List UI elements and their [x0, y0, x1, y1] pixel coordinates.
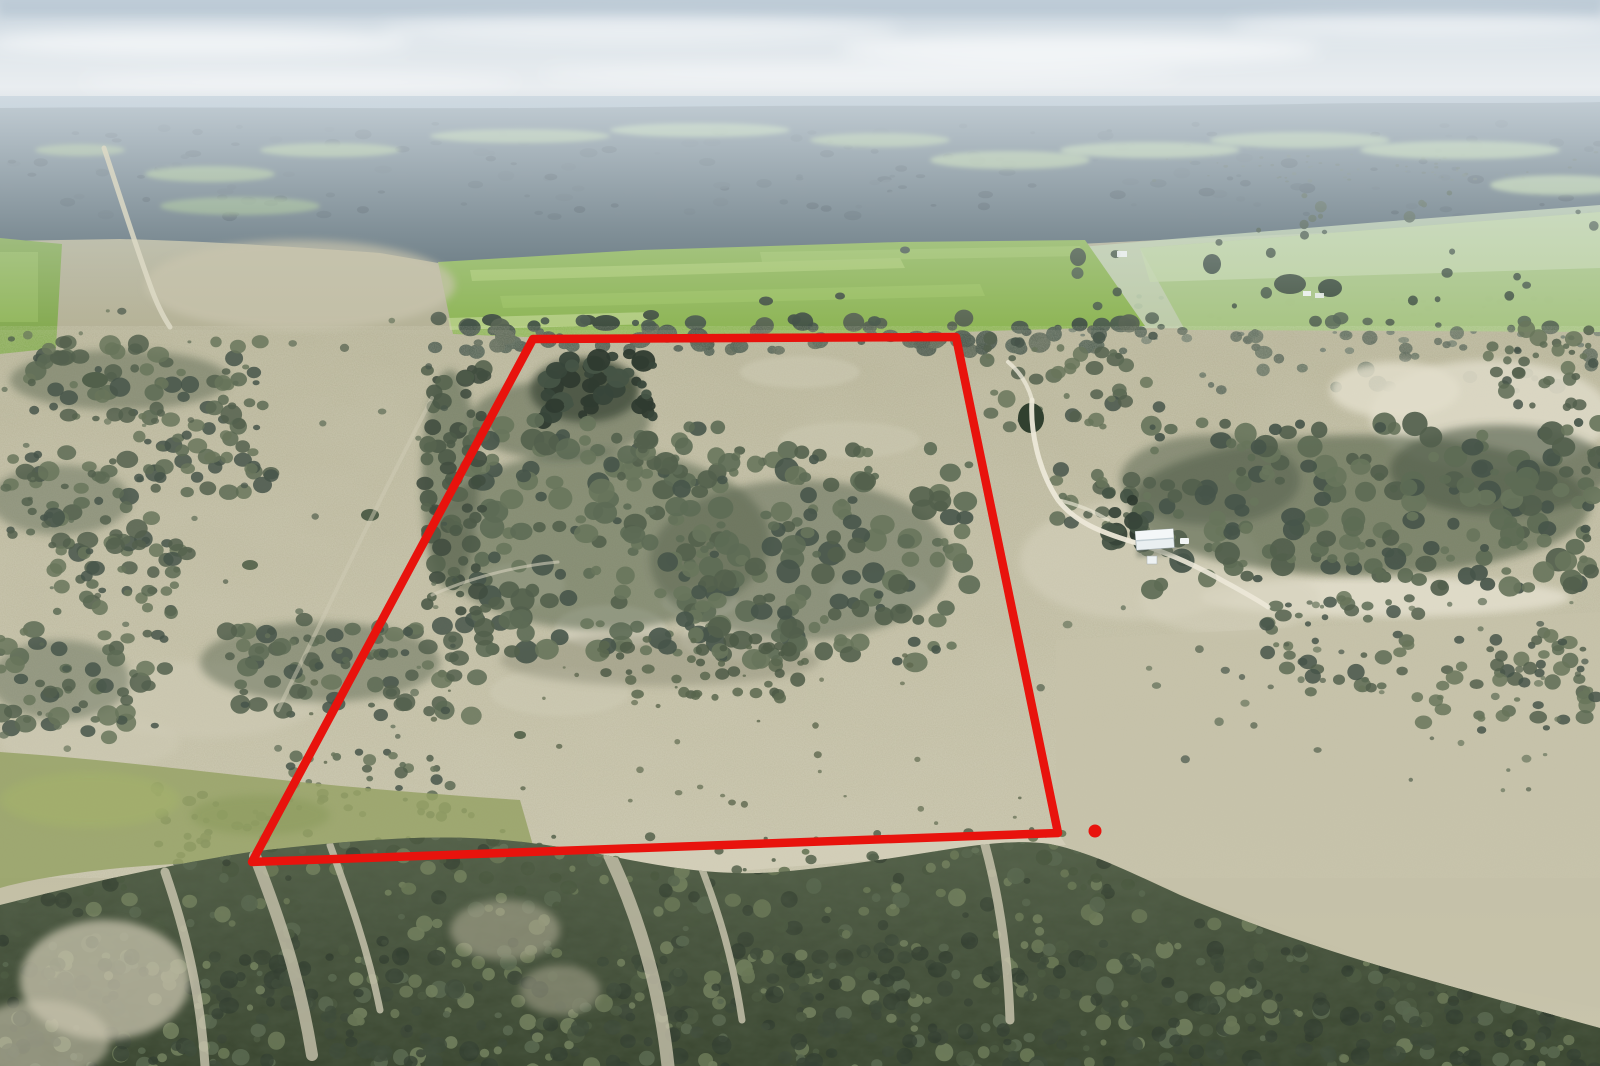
vegetation-blob [446, 669, 462, 681]
vegetation-blob [1514, 697, 1520, 702]
vegetation-blob [1379, 690, 1385, 694]
vegetation-blob [1537, 534, 1552, 548]
vegetation-blob [812, 722, 819, 728]
vegetation-blob [862, 562, 885, 583]
vegetation-blob [1109, 507, 1122, 518]
vegetation-blob [937, 601, 955, 616]
vegetation-blob [1099, 424, 1106, 430]
vegetation-blob [467, 409, 476, 418]
vegetation-blob [1377, 682, 1387, 689]
vegetation-blob [1, 484, 12, 492]
vegetation-blob [421, 598, 433, 610]
vegetation-blob [225, 652, 235, 660]
vegetation-blob [1251, 439, 1267, 454]
vegetation-blob [264, 469, 279, 482]
vegetation-blob [617, 446, 638, 464]
vegetation-blob [1181, 755, 1190, 763]
vegetation-blob [520, 786, 525, 790]
vegetation-blob [574, 524, 598, 543]
vegetation-blob [157, 662, 173, 675]
vegetation-blob [1561, 424, 1574, 435]
vegetation-blob [1297, 436, 1322, 458]
vegetation-blob [1152, 682, 1161, 689]
vegetation-blob [426, 385, 442, 401]
vegetation-blob [257, 401, 269, 411]
vegetation-blob [1491, 693, 1500, 700]
vegetation-blob [637, 380, 647, 388]
vegetation-blob [143, 630, 153, 638]
vegetation-blob [847, 496, 857, 504]
vegetation-blob [132, 540, 146, 550]
vegetation-blob [290, 751, 303, 763]
vegetation-blob [124, 590, 132, 597]
vegetation-blob [743, 868, 747, 871]
vegetation-blob [775, 669, 785, 678]
vegetation-blob [1053, 462, 1069, 477]
vegetation-blob [430, 766, 437, 772]
vegetation-blob [862, 448, 873, 457]
vegetation-blob [1490, 634, 1503, 646]
vegetation-blob [235, 440, 250, 453]
vegetation-blob [140, 363, 154, 375]
vegetation-blob [151, 723, 159, 729]
vegetation-blob [378, 409, 387, 415]
vegetation-blob [98, 588, 106, 594]
vegetation-blob [1415, 716, 1432, 730]
vegetation-blob [136, 661, 155, 676]
vegetation-blob [70, 381, 78, 388]
vegetation-blob [145, 384, 164, 401]
vegetation-blob [418, 640, 437, 655]
vegetation-blob [631, 700, 638, 705]
vegetation-blob [984, 332, 998, 345]
vegetation-blob [823, 478, 839, 492]
vegetation-blob [1487, 341, 1499, 351]
vegetation-blob [774, 642, 784, 650]
vegetation-blob [457, 370, 475, 384]
vegetation-blob [1339, 534, 1361, 550]
vegetation-blob [455, 606, 466, 615]
vegetation-blob [1411, 573, 1427, 586]
vegetation-blob [220, 430, 232, 440]
vegetation-blob [1456, 662, 1467, 672]
vegetation-blob [1565, 331, 1583, 346]
vegetation-blob [141, 680, 155, 691]
vegetation-blob [1118, 395, 1133, 408]
vegetation-blob [648, 411, 658, 421]
vegetation-blob [1307, 507, 1328, 524]
vegetation-blob [628, 799, 633, 803]
vegetation-blob [843, 515, 862, 530]
vegetation-blob [4, 705, 22, 718]
vegetation-blob [168, 538, 183, 551]
vegetation-blob [1576, 710, 1594, 724]
vegetation-blob [120, 501, 133, 513]
aerial-photo-canvas [0, 0, 1600, 1066]
vegetation-blob [700, 672, 710, 681]
vegetation-blob [441, 405, 448, 411]
vegetation-blob [560, 590, 578, 606]
vegetation-blob [983, 345, 992, 353]
vegetation-blob [462, 503, 473, 512]
vegetation-blob [236, 639, 251, 652]
vegetation-blob [1575, 671, 1581, 677]
vegetation-blob [771, 502, 792, 522]
vegetation-blob [648, 628, 671, 650]
vegetation-blob [95, 389, 111, 402]
vegetation-blob [126, 519, 148, 538]
vegetation-blob [1093, 332, 1106, 344]
vegetation-blob [890, 604, 913, 624]
vegetation-blob [1327, 554, 1337, 563]
vegetation-blob [811, 563, 834, 584]
vegetation-blob [95, 366, 102, 373]
vegetation-blob [47, 383, 64, 397]
vegetation-blob [774, 693, 786, 704]
vegetation-blob [272, 638, 292, 655]
vegetation-blob [671, 675, 681, 684]
vegetation-blob [448, 567, 460, 577]
vegetation-blob [448, 690, 451, 692]
vegetation-blob [128, 335, 149, 354]
vegetation-blob [1561, 361, 1576, 375]
vegetation-blob [929, 490, 952, 511]
vegetation-blob [1313, 647, 1322, 653]
vegetation-blob [535, 639, 559, 660]
vegetation-blob [340, 344, 349, 352]
vegetation-blob [1512, 367, 1526, 379]
vegetation-blob [56, 546, 67, 556]
vegetation-blob [1094, 347, 1109, 359]
vegetation-blob [797, 660, 804, 666]
vegetation-blob [1366, 683, 1377, 693]
vegetation-blob [459, 425, 467, 433]
vegetation-blob [603, 457, 619, 473]
vegetation-blob [1533, 701, 1544, 709]
vegetation-blob [918, 806, 925, 812]
vegetation-blob [1583, 325, 1594, 335]
vegetation-blob [763, 642, 775, 652]
vegetation-blob [768, 521, 780, 530]
vegetation-blob [747, 456, 764, 473]
vegetation-blob [106, 537, 125, 554]
vegetation-blob [749, 634, 763, 645]
vegetation-blob [28, 508, 37, 515]
vegetation-blob [396, 693, 416, 711]
vegetation-blob [609, 622, 632, 640]
vegetation-blob [986, 354, 992, 359]
vegetation-blob [1295, 420, 1305, 429]
vegetation-blob [1506, 768, 1510, 772]
vegetation-blob [1554, 717, 1560, 722]
vegetation-blob [57, 445, 76, 460]
vegetation-blob [579, 416, 596, 431]
vegetation-blob [945, 543, 967, 561]
vegetation-blob [717, 476, 728, 485]
vegetation-blob [874, 590, 884, 598]
vegetation-blob [1440, 546, 1449, 554]
vegetation-blob [405, 670, 418, 681]
vegetation-blob [696, 644, 710, 656]
vegetation-blob [219, 485, 239, 500]
vegetation-blob [49, 403, 58, 411]
vegetation-blob [1018, 797, 1022, 800]
vegetation-blob [133, 431, 145, 443]
vegetation-blob [432, 539, 451, 556]
vegetation-blob [1409, 606, 1416, 611]
vegetation-blob [1541, 676, 1546, 680]
vegetation-blob [940, 538, 948, 546]
vegetation-blob [265, 633, 271, 638]
vegetation-blob [295, 608, 303, 614]
grass-patch [190, 795, 330, 835]
vegetation-blob [1270, 538, 1295, 561]
vegetation-blob [864, 466, 873, 474]
vegetation-blob [1221, 667, 1230, 674]
vegetation-blob [34, 451, 43, 459]
vegetation-blob [181, 487, 194, 497]
vegetation-blob [1386, 605, 1401, 618]
vegetation-blob [1236, 467, 1246, 476]
vegetation-blob [79, 331, 83, 335]
vegetation-blob [794, 446, 809, 459]
vegetation-blob [1402, 640, 1415, 650]
vegetation-blob [96, 678, 114, 693]
vegetation-blob [1515, 666, 1523, 673]
vegetation-blob [471, 563, 481, 572]
vegetation-blob [1490, 659, 1504, 672]
vegetation-blob [805, 855, 816, 864]
vegetation-blob [448, 636, 456, 643]
vegetation-blob [53, 608, 62, 615]
vegetation-blob [319, 420, 326, 426]
vegetation-blob [799, 472, 811, 482]
vegetation-blob [715, 531, 740, 555]
vegetation-blob [399, 762, 406, 768]
vegetation-blob [1312, 638, 1319, 645]
vegetation-blob [634, 437, 650, 449]
vegetation-blob [611, 433, 622, 444]
vegetation-blob [55, 336, 72, 348]
vegetation-blob [60, 409, 78, 422]
vegetation-blob [222, 368, 231, 375]
vegetation-blob [191, 516, 197, 521]
vegetation-blob [156, 444, 165, 451]
vegetation-blob [363, 754, 376, 766]
vegetation-blob [716, 521, 725, 528]
vegetation-blob [176, 369, 186, 376]
vegetation-blob [1415, 556, 1436, 572]
vegetation-blob [82, 461, 97, 471]
vegetation-blob [1439, 475, 1451, 484]
vegetation-blob [64, 745, 72, 752]
vegetation-blob [1146, 666, 1152, 671]
vegetation-blob [109, 458, 117, 464]
vegetation-blob [187, 549, 192, 553]
vegetation-blob [691, 585, 707, 599]
vegetation-blob [253, 425, 260, 430]
vegetation-blob [228, 402, 236, 409]
boundary-corner-marker [1089, 825, 1102, 838]
parked-vehicle [1180, 538, 1189, 544]
vegetation-blob [1307, 600, 1313, 604]
vegetation-blob [187, 340, 191, 343]
vegetation-blob [86, 548, 94, 554]
vegetation-blob [144, 439, 152, 445]
vegetation-blob [720, 645, 728, 651]
vegetation-blob [1219, 419, 1231, 429]
vegetation-blob [958, 575, 980, 594]
vegetation-blob [954, 524, 971, 539]
vegetation-blob [1250, 722, 1257, 729]
vegetation-blob [643, 636, 652, 643]
vegetation-blob [500, 489, 523, 509]
vegetation-blob [690, 638, 696, 644]
vegetation-blob [1124, 513, 1143, 530]
vegetation-blob [1478, 626, 1484, 631]
vegetation-blob [1314, 747, 1322, 753]
vegetation-blob [79, 700, 88, 708]
vegetation-blob [177, 392, 189, 402]
vegetation-blob [1404, 594, 1415, 602]
vegetation-blob [107, 650, 125, 667]
vegetation-blob [1457, 477, 1475, 493]
vegetation-blob [757, 720, 761, 723]
vegetation-blob [510, 523, 532, 540]
vegetation-blob [579, 435, 591, 446]
vegetation-blob [631, 398, 649, 414]
vegetation-blob [1526, 787, 1531, 791]
vegetation-blob [552, 521, 566, 532]
vegetation-blob [641, 389, 652, 399]
vegetation-blob [1363, 615, 1373, 623]
vegetation-blob [1382, 573, 1391, 581]
vegetation-blob [264, 675, 281, 688]
vegetation-blob [645, 507, 656, 515]
vegetation-blob [1579, 555, 1588, 563]
vegetation-blob [247, 367, 261, 378]
vegetation-blob [654, 588, 666, 598]
vegetation-blob [467, 669, 487, 685]
vegetation-blob [141, 585, 156, 597]
vegetation-blob [326, 628, 344, 642]
vegetation-blob [1496, 710, 1510, 722]
vegetation-blob [1209, 511, 1226, 526]
vegetation-blob [1458, 740, 1465, 746]
vegetation-blob [673, 586, 692, 601]
vegetation-blob [433, 605, 439, 609]
vegetation-blob [182, 431, 192, 440]
vegetation-blob [474, 631, 494, 646]
vegetation-blob [1580, 647, 1587, 652]
forest-sand-gap [520, 965, 600, 1015]
vegetation-blob [429, 571, 446, 584]
vegetation-blob [616, 652, 624, 659]
vegetation-blob [1325, 466, 1347, 487]
vegetation-blob [1518, 677, 1530, 687]
vegetation-blob [1543, 629, 1558, 643]
vegetation-blob [1533, 353, 1540, 359]
vegetation-blob [170, 581, 179, 589]
vegetation-blob [714, 569, 737, 591]
vegetation-blob [147, 347, 169, 363]
vegetation-blob [1298, 676, 1305, 683]
vegetation-blob [1298, 658, 1308, 666]
vegetation-blob [1514, 347, 1521, 353]
vegetation-blob [1374, 422, 1386, 433]
vegetation-blob [623, 349, 636, 359]
vegetation-blob [682, 561, 699, 577]
vegetation-blob [1008, 355, 1016, 361]
vegetation-blob [591, 566, 601, 575]
vegetation-blob [818, 770, 822, 774]
vegetation-blob [26, 529, 35, 536]
vegetation-blob [599, 641, 610, 650]
vegetation-blob [1344, 552, 1359, 566]
vegetation-blob [631, 690, 644, 699]
vegetation-blob [79, 591, 94, 604]
vegetation-blob [1499, 576, 1522, 596]
vegetation-blob [223, 579, 228, 584]
vegetation-blob [41, 521, 51, 528]
vegetation-blob [130, 364, 139, 372]
vegetation-blob [221, 452, 233, 464]
vegetation-blob [642, 664, 655, 673]
vegetation-blob [687, 655, 696, 663]
vegetation-blob [217, 622, 237, 640]
vegetation-blob [535, 492, 546, 502]
vegetation-blob [708, 497, 734, 519]
vegetation-blob [1281, 508, 1305, 526]
vegetation-blob [777, 606, 792, 620]
vegetation-blob [848, 538, 866, 554]
vegetation-blob [1511, 477, 1536, 496]
vegetation-blob [181, 376, 199, 393]
vegetation-blob [1563, 403, 1571, 411]
vegetation-blob [286, 762, 296, 770]
vegetation-blob [556, 744, 562, 749]
vegetation-blob [802, 849, 810, 855]
vegetation-blob [47, 563, 63, 577]
vegetation-blob [29, 406, 39, 415]
vegetation-blob [984, 408, 999, 419]
vegetation-blob [1112, 384, 1127, 396]
vegetation-blob [1435, 704, 1452, 716]
vegetation-blob [946, 642, 956, 650]
vegetation-blob [62, 665, 71, 672]
vegetation-blob [1588, 358, 1599, 368]
vegetation-blob [1320, 605, 1324, 609]
vegetation-blob [803, 508, 817, 521]
vegetation-blob [54, 723, 62, 730]
vegetation-blob [136, 476, 144, 482]
vegetation-blob [23, 717, 31, 723]
vegetation-blob [753, 595, 767, 605]
vegetation-blob [525, 584, 539, 597]
vegetation-blob [463, 518, 477, 529]
vegetation-blob [440, 462, 457, 475]
vegetation-blob [1150, 424, 1156, 430]
vegetation-blob [441, 707, 450, 715]
vegetation-blob [1566, 539, 1585, 555]
vegetation-blob [421, 453, 434, 466]
vegetation-blob [527, 413, 545, 428]
vegetation-blob [723, 633, 739, 647]
vegetation-blob [640, 645, 652, 655]
vegetation-blob [5, 656, 25, 673]
vegetation-blob [1505, 345, 1514, 354]
vegetation-blob [92, 600, 108, 615]
